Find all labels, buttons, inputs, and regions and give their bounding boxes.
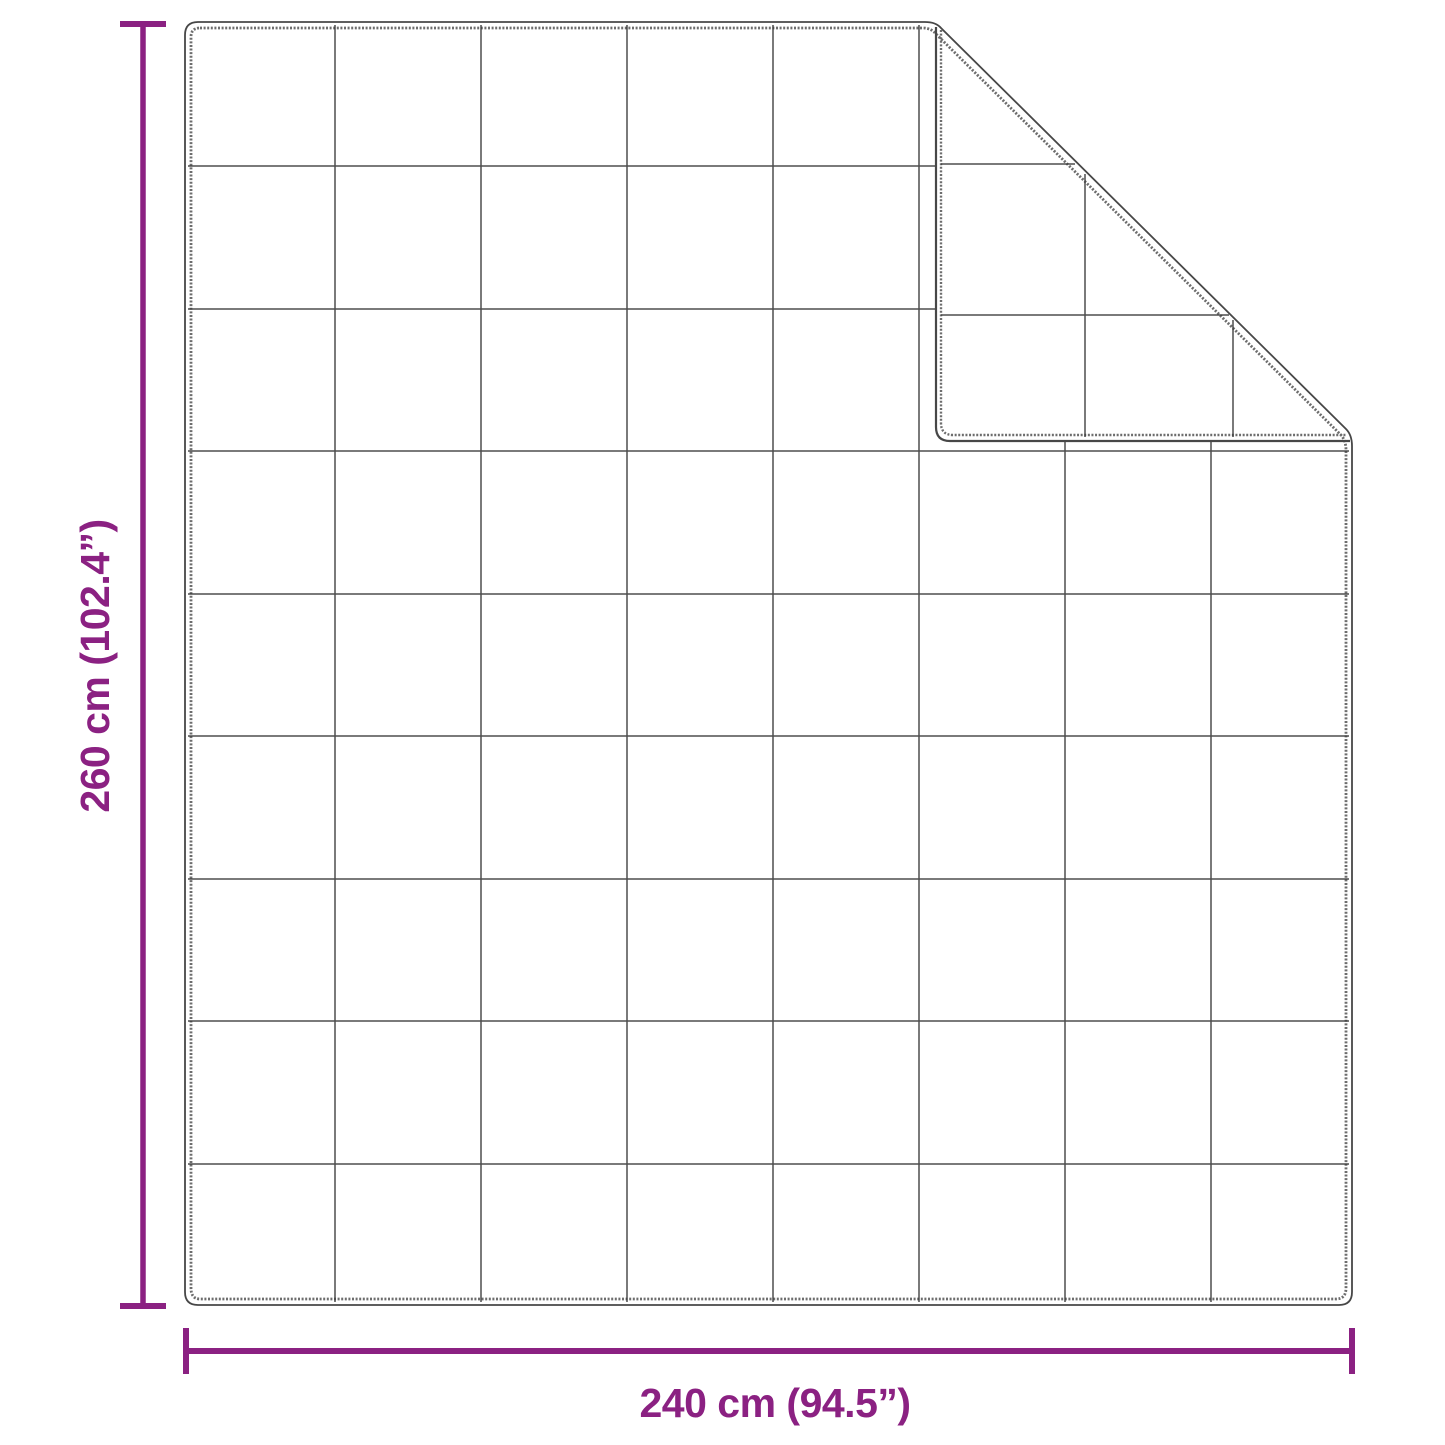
flap-stitching — [941, 30, 1347, 435]
quilt-grid-flap — [941, 164, 1233, 437]
folded-corner-flap — [936, 27, 1350, 441]
blanket-stitching — [191, 28, 1346, 1299]
flap-outline — [936, 27, 1350, 441]
blanket-dimension-diagram: 260 cm (102.4”) 240 cm (94.5”) — [0, 0, 1445, 1445]
blanket-outline — [185, 22, 1352, 1305]
blanket-body — [185, 22, 1352, 1305]
width-dimension-label: 240 cm (94.5”) — [639, 1380, 910, 1426]
height-dimension-label: 260 cm (102.4”) — [72, 519, 118, 812]
width-dimension — [186, 1328, 1352, 1374]
height-dimension — [120, 23, 166, 1307]
diagram-canvas: 260 cm (102.4”) 240 cm (94.5”) — [0, 0, 1445, 1445]
quilt-grid-body — [188, 25, 1349, 1302]
